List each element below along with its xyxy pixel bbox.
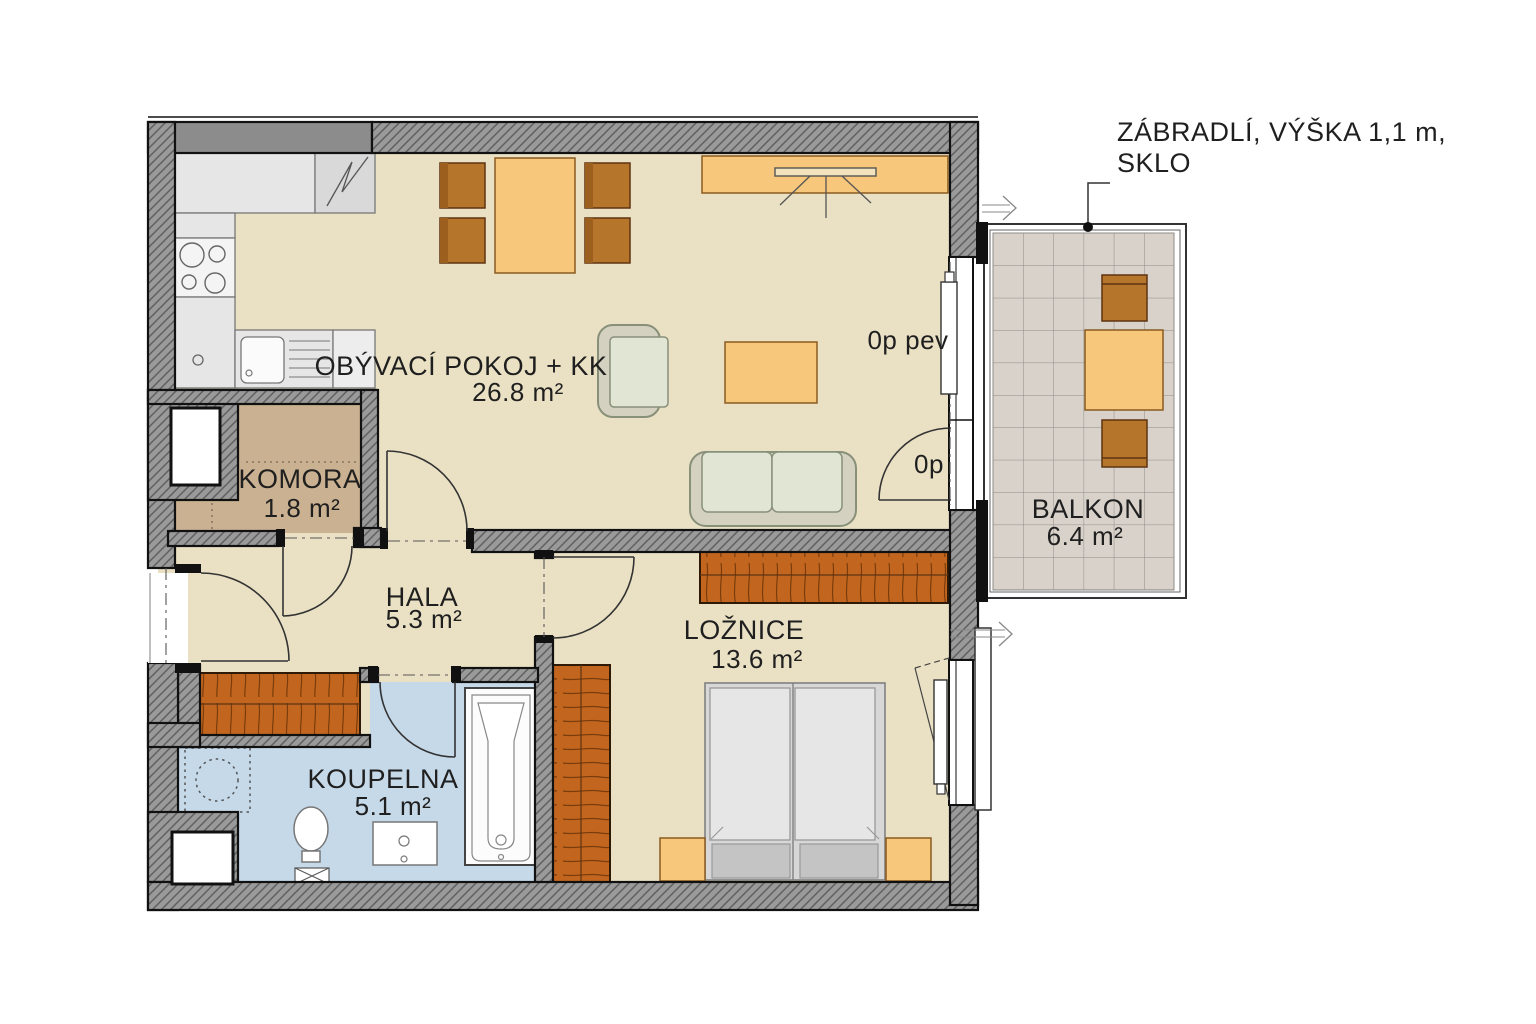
kitchen-tall-unit: [315, 153, 375, 213]
railing-annotation: ZÁBRADLÍ, VÝŠKA 1,1 m, SKLO: [1117, 117, 1446, 179]
window-fixed-label: 0p pev: [867, 325, 948, 356]
tv-icon: [775, 168, 876, 176]
nightstand: [886, 838, 931, 881]
room-area-balkon: 6.4 m²: [1047, 521, 1124, 552]
installation-shaft: [171, 408, 220, 485]
bed-mattress: [710, 688, 790, 840]
exterior-arrow-top: [982, 196, 1016, 220]
floor-plan: OBÝVACÍ POKOJ + KK 26.8 m² KOMORA 1.8 m²…: [0, 0, 1536, 1024]
room-label-loznice: LOŽNICE: [684, 615, 805, 646]
wall-end-cap: [976, 500, 988, 602]
room-label-komora: KOMORA: [238, 464, 361, 495]
coffee-table: [725, 342, 817, 403]
balcony-chair-top: [1102, 275, 1147, 321]
wall-end-cap: [976, 222, 988, 264]
room-area-koupelna: 5.1 m²: [355, 791, 432, 822]
bathtub: [465, 688, 537, 865]
railing-annotation-line1: ZÁBRADLÍ, VÝŠKA 1,1 m,: [1117, 117, 1446, 148]
balcony-table: [1085, 330, 1163, 410]
nightstand: [660, 838, 705, 881]
installation-shaft: [172, 832, 233, 884]
room-area-komora: 1.8 m²: [264, 493, 341, 524]
railing-annotation-line2: SKLO: [1117, 148, 1446, 179]
room-area-hala: 5.3 m²: [386, 604, 463, 635]
dining-table: [495, 158, 575, 273]
room-area-loznice: 13.6 m²: [711, 644, 803, 675]
leader-dot: [1083, 222, 1093, 232]
balcony-door-label: 0p: [914, 449, 944, 480]
balcony-chair-bottom: [1102, 420, 1147, 467]
leader-line: [1088, 183, 1110, 227]
bed-mattress: [795, 688, 875, 840]
kitchen-hob: [175, 238, 235, 297]
kitchen-counter-top: [175, 153, 315, 213]
vanity-sink: [373, 822, 437, 865]
entrance-opening: [148, 573, 188, 663]
room-area-living: 26.8 m²: [472, 377, 564, 408]
bed-pillow: [800, 844, 878, 878]
bed-pillow: [712, 844, 790, 878]
bedroom-radiator: [934, 680, 947, 794]
